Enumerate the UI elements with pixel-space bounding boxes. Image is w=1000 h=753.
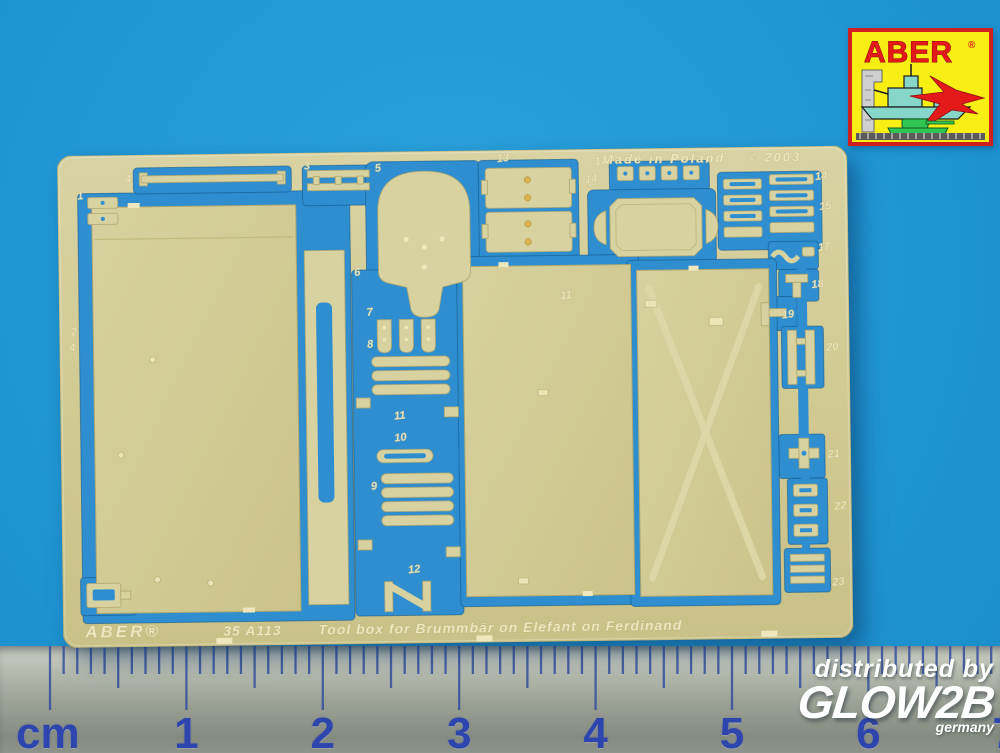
etch-product-code: 35 A113 (223, 622, 282, 639)
ruler-unit-label: cm (16, 709, 80, 753)
part-number-label: 2 (69, 326, 77, 339)
part-number-label: 10 (394, 431, 408, 444)
part-number-label: 13 (594, 155, 608, 168)
panel-lid-middle (462, 265, 634, 597)
part-number-label: 14 (584, 173, 598, 186)
aber-logo: ABER ® (848, 28, 993, 146)
aber-logo-brand: ABER (864, 36, 953, 69)
part-number-label: 13 (496, 152, 510, 165)
part-number-label: 17 (817, 241, 831, 254)
part-number-label: 18 (811, 278, 825, 291)
machinist-square-icon (862, 70, 882, 132)
part-number-label: 11 (560, 289, 573, 302)
product-photo: cm 1234567 (0, 0, 1000, 753)
etch-copyright-year: © 2003 (747, 149, 801, 165)
etch-made-in: Made in Poland (602, 150, 726, 167)
ruler-number: 3 (447, 709, 471, 753)
panel-lid-left (92, 205, 301, 614)
scale-ruler-icon (856, 133, 985, 140)
part-number-label: 22 (833, 499, 848, 512)
photo-etched-sheet: Made in Poland © 2003 ABER® 35 A113 Tool… (57, 146, 853, 648)
ruler-number: 5 (720, 709, 744, 753)
part-number-label: 15 (819, 200, 833, 213)
etch-brand: ABER® (84, 622, 161, 642)
ruler-number: 2 (311, 709, 335, 753)
part-number-label: 21 (826, 448, 841, 461)
aber-logo-art: ABER ® (852, 32, 989, 142)
ruler-number: 1 (174, 709, 198, 753)
part-number-label: 12 (407, 563, 421, 576)
part-number-label: 14 (814, 170, 828, 183)
part-number-label: 4 (123, 173, 131, 186)
registered-trademark-mark: ® (968, 40, 976, 51)
part-number-label: 11 (393, 409, 406, 422)
glow2b-logo-text: GLOW2B (796, 684, 996, 721)
octagon-box-part (610, 198, 703, 257)
part-number-label: 4 (68, 342, 76, 355)
ruler-number: 4 (583, 709, 607, 753)
part-number-label: 23 (831, 576, 846, 589)
distributor-watermark: distributed by GLOW2B germany (798, 655, 994, 735)
part-number-label: 20 (825, 340, 840, 354)
part-number-label: 19 (781, 308, 795, 321)
